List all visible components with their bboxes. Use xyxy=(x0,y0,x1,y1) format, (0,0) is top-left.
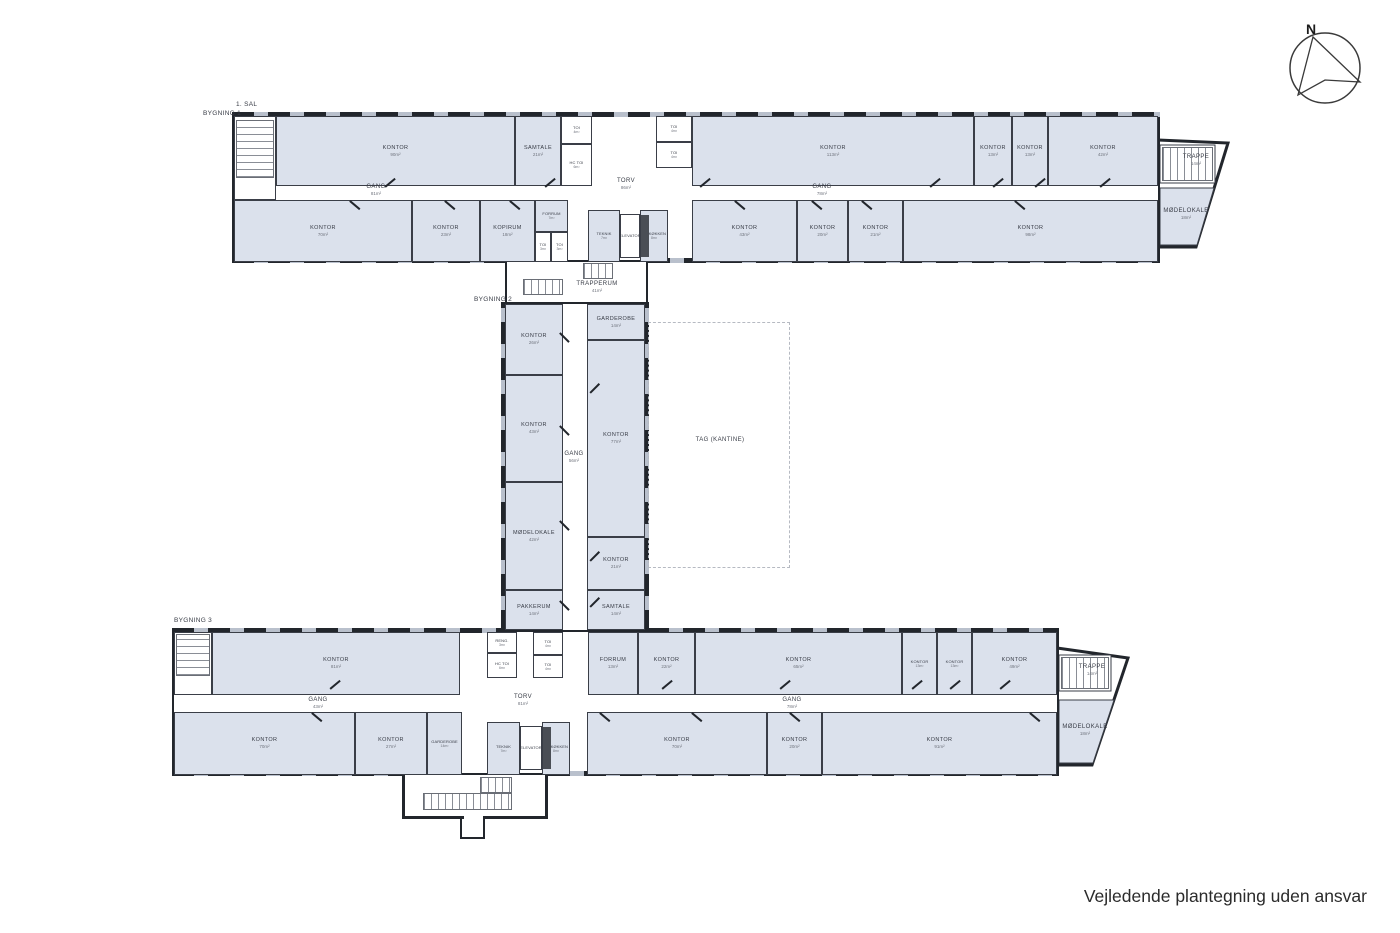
wall-segment xyxy=(402,816,464,819)
room-label: ELEVATOR xyxy=(520,745,541,750)
room-area: 14m² xyxy=(441,744,449,749)
room-label: KONTOR xyxy=(810,225,836,232)
b3-moedelokale-18-east: MØDELOKALE18m² xyxy=(1062,723,1107,737)
area-size: 78m² xyxy=(782,704,801,710)
room-b1-toi-3-a: TOI3m² xyxy=(535,232,551,262)
area-size: 43m² xyxy=(308,704,327,710)
room-area: 13m² xyxy=(916,664,924,669)
area-size: 14m² xyxy=(1183,161,1209,167)
room-b1-kontor-90: KONTOR90m² xyxy=(276,116,515,186)
room-label: KOPIRUM xyxy=(493,225,521,232)
wall-segment xyxy=(646,260,648,304)
area-label: GANG xyxy=(782,696,801,704)
kitchen-counter xyxy=(641,215,649,257)
room-area: 26m² xyxy=(529,340,539,346)
room-area: 4m² xyxy=(545,667,551,672)
room-label: KONTOR xyxy=(820,145,846,152)
room-b1-forrum-7: FORRUM7m² xyxy=(535,200,568,232)
room-area: 3m² xyxy=(499,643,505,648)
room-area: 77m² xyxy=(611,439,621,445)
room-b3-forrum-13: FORRUM13m² xyxy=(588,632,638,695)
room-b3-kontor-49: KONTOR49m² xyxy=(972,632,1057,695)
room-b2-garderobe-14: GARDEROBE14m² xyxy=(587,304,645,340)
room-area: 8m² xyxy=(553,749,559,754)
stairs xyxy=(176,634,210,676)
room-label: KONTOR xyxy=(1017,145,1043,152)
area-label: MØDELOKALE xyxy=(1163,207,1208,215)
room-area: 14m² xyxy=(529,611,539,617)
room-b2-kontor-26: KONTOR26m² xyxy=(505,304,563,375)
b1-gang-81: GANG81m² xyxy=(366,183,385,197)
room-b3-kontor-91: KONTOR91m² xyxy=(822,712,1057,775)
room-area: 49m² xyxy=(1009,664,1019,670)
area-label: GANG xyxy=(564,450,583,458)
area-size: 18m² xyxy=(1163,215,1208,221)
room-b2-moedelokale-42: MØDELOKALE42m² xyxy=(505,482,563,590)
room-b3-elevator: ELEVATOR xyxy=(520,726,542,770)
room-label: MØDELOKALE xyxy=(513,530,555,537)
room-b1-samtale-21: SAMTALE21m² xyxy=(515,116,561,186)
room-b1-kontor-20: KONTOR20m² xyxy=(797,200,848,262)
room-area: 43m² xyxy=(739,232,749,238)
room-area: 18m² xyxy=(502,232,512,238)
room-area: 113m² xyxy=(827,152,839,158)
room-area: 14m² xyxy=(611,611,621,617)
room-label: KONTOR xyxy=(378,737,404,744)
room-area: 70m² xyxy=(672,744,682,750)
room-b2-samtale-14: SAMTALE14m² xyxy=(587,590,645,630)
room-area: 4m² xyxy=(671,129,677,134)
room-label: KONTOR xyxy=(664,737,690,744)
b2-gang-56: GANG56m² xyxy=(564,450,583,464)
room-area: 7m² xyxy=(548,216,554,221)
building-3-label: BYGNING 3 xyxy=(174,617,212,624)
room-label: KONTOR xyxy=(433,225,459,232)
stairs xyxy=(480,777,512,793)
room-b3-kontor-65: KONTOR65m² xyxy=(695,632,902,695)
b3-gang-43: GANG43m² xyxy=(308,696,327,710)
room-area: 90m² xyxy=(390,152,400,158)
room-b3-kontor-27: KONTOR27m² xyxy=(355,712,427,775)
room-area: 20m² xyxy=(817,232,827,238)
room-label: KONTOR xyxy=(252,737,278,744)
b1-torv-86: TORV86m² xyxy=(617,177,635,191)
room-label: KONTOR xyxy=(980,145,1006,152)
disclaimer-text: Vejledende plantegning uden ansvar xyxy=(1084,886,1367,907)
room-area: 21m² xyxy=(611,564,621,570)
room-b1-kontor-70: KONTOR70m² xyxy=(234,200,412,262)
room-area: 3m² xyxy=(540,247,546,252)
room-b1-kontor-23: KONTOR23m² xyxy=(412,200,480,262)
stairs xyxy=(236,120,274,178)
wall-segment xyxy=(460,816,462,839)
room-b3-kontor-70-west: KONTOR70m² xyxy=(174,712,355,775)
room-area: 4m² xyxy=(573,130,579,135)
room-b1-toi-4-ne1: TOI4m² xyxy=(656,116,692,142)
room-area: 42m² xyxy=(1098,152,1108,158)
room-b1-kontor-113: KONTOR113m² xyxy=(692,116,974,186)
b3-torv-81: TORV81m² xyxy=(514,693,532,707)
room-area: 70m² xyxy=(318,232,328,238)
room-label: FORRUM xyxy=(600,657,627,664)
area-size: 14m² xyxy=(1079,671,1105,677)
room-b3-kontor-81: KONTOR81m² xyxy=(212,632,460,695)
room-label: KONTOR xyxy=(1018,225,1044,232)
room-label: KONTOR xyxy=(383,145,409,152)
room-area: 14m² xyxy=(611,323,621,329)
room-b1-teknik-7: TEKNIK7m² xyxy=(588,210,620,262)
room-label: KONTOR xyxy=(1002,657,1028,664)
room-b1-kontor-21: KONTOR21m² xyxy=(848,200,903,262)
floor-label: 1. SAL xyxy=(236,101,257,108)
room-b2-kontor-21: KONTOR21m² xyxy=(587,537,645,590)
room-area: 4m² xyxy=(545,644,551,649)
b3-trappe-14-east: TRAPPE14m² xyxy=(1079,663,1105,677)
area-size: 86m² xyxy=(617,185,635,191)
room-label: KONTOR xyxy=(863,225,889,232)
area-label: MØDELOKALE xyxy=(1062,723,1107,731)
b1-trappe-14-east: TRAPPE14m² xyxy=(1183,153,1209,167)
room-b3-reng-3: RENG.3m² xyxy=(487,632,517,653)
area-size: 81m² xyxy=(366,191,385,197)
area-label: TRAPPERUM xyxy=(576,280,617,288)
room-b3-kontor-13-a: KONTOR13m² xyxy=(902,632,937,695)
room-area: 7m² xyxy=(601,236,607,241)
room-label: KONTOR xyxy=(521,422,547,429)
room-area: 23m² xyxy=(441,232,451,238)
room-area: 27m² xyxy=(386,744,396,750)
room-label: KONTOR xyxy=(782,737,808,744)
room-area: 4m² xyxy=(671,155,677,160)
north-compass-icon xyxy=(1290,33,1360,103)
stairs xyxy=(583,263,613,279)
area-label: TRAPPE xyxy=(1079,663,1105,671)
area-size: 78m² xyxy=(812,191,831,197)
area-size: 56m² xyxy=(564,458,583,464)
room-label: ELEVATOR xyxy=(620,233,640,238)
room-label: SAMTALE xyxy=(524,145,552,152)
room-area: 6m² xyxy=(499,666,505,671)
room-area: 43m² xyxy=(529,429,539,435)
room-area: 13m² xyxy=(1025,152,1035,158)
room-b3-toi-4-b: TOI4m² xyxy=(533,655,563,678)
room-area: 7m² xyxy=(500,749,506,754)
room-label: SAMTALE xyxy=(602,604,630,611)
room-area: 21m² xyxy=(870,232,880,238)
room-b3-teknik-7: TEKNIK7m² xyxy=(487,722,520,775)
stairs xyxy=(423,793,512,810)
room-area: 22m² xyxy=(661,664,671,670)
room-label: KONTOR xyxy=(1090,145,1116,152)
room-b1-elevator: ELEVATOR xyxy=(620,214,640,258)
room-b1-kontor-42: KONTOR42m² xyxy=(1048,116,1158,186)
room-b3-garderobe-14: GARDEROBE14m² xyxy=(427,712,462,775)
room-label: GARDEROBE xyxy=(597,316,636,323)
wall-segment xyxy=(545,775,548,819)
room-area: 70m² xyxy=(259,744,269,750)
room-b1-hc-toi-6: HC TOI6m² xyxy=(561,144,592,186)
kitchen-counter xyxy=(543,727,551,769)
room-label: KONTOR xyxy=(732,225,758,232)
building-2-label: BYGNING 2 xyxy=(474,296,512,303)
room-label: PAKKERUM xyxy=(517,604,551,611)
room-area: 8m² xyxy=(651,236,657,241)
floorplan-canvas: N Vejledende plantegning uden ansvar KON… xyxy=(0,0,1400,933)
b1-gang-78: GANG78m² xyxy=(812,183,831,197)
area-label: GANG xyxy=(308,696,327,704)
room-label: KONTOR xyxy=(323,657,349,664)
room-label: KONTOR xyxy=(654,657,680,664)
area-label: TRAPPE xyxy=(1183,153,1209,161)
b3-gang-78: GANG78m² xyxy=(782,696,801,710)
room-b2-kontor-77: KONTOR77m² xyxy=(587,340,645,537)
room-b1-toi-3-b: TOI3m² xyxy=(551,232,568,262)
room-b3-kontor-20: KONTOR20m² xyxy=(767,712,822,775)
area-label: GANG xyxy=(812,183,831,191)
tag-kantine: TAG (KANTINE) xyxy=(696,436,745,444)
room-area: 20m² xyxy=(789,744,799,750)
room-area: 91m² xyxy=(934,744,944,750)
area-label: TORV xyxy=(617,177,635,185)
room-area: 81m² xyxy=(331,664,341,670)
area-size: 41m² xyxy=(576,288,617,294)
area-label: TAG (KANTINE) xyxy=(696,436,745,444)
room-b1-kontor-13-b: KONTOR13m² xyxy=(1012,116,1048,186)
room-b1-kontor-98: KONTOR98m² xyxy=(903,200,1158,262)
area-label: GANG xyxy=(366,183,385,191)
room-b1-kontor-13-a: KONTOR13m² xyxy=(974,116,1012,186)
room-label: KONTOR xyxy=(927,737,953,744)
room-b1-toi-4-nw: TOI4m² xyxy=(561,116,592,144)
room-label: KONTOR xyxy=(603,432,629,439)
room-b3-hc-toi-6: HC TOI6m² xyxy=(487,653,517,678)
tag-kantine-area xyxy=(648,322,790,568)
room-area: 6m² xyxy=(573,165,579,170)
room-b1-toi-4-ne2: TOI4m² xyxy=(656,142,692,168)
b1-moedelokale-18-east: MØDELOKALE18m² xyxy=(1163,207,1208,221)
room-label: KONTOR xyxy=(521,333,547,340)
room-b3-toi-4-a: TOI4m² xyxy=(533,632,563,655)
wall-segment xyxy=(460,837,485,839)
room-b1-kopirum-18: KOPIRUM18m² xyxy=(480,200,535,262)
room-area: 42m² xyxy=(529,537,539,543)
area-label: TORV xyxy=(514,693,532,701)
stairs xyxy=(523,279,563,295)
room-area: 98m² xyxy=(1025,232,1035,238)
room-b2-kontor-43: KONTOR43m² xyxy=(505,375,563,482)
wall-segment xyxy=(483,816,485,839)
area-size: 18m² xyxy=(1062,731,1107,737)
trapperum-41: TRAPPERUM41m² xyxy=(576,280,617,294)
area-size: 81m² xyxy=(514,701,532,707)
building-1-label: BYGNING 1 xyxy=(203,110,241,117)
wall-segment xyxy=(402,775,405,819)
room-area: 13m² xyxy=(951,664,959,669)
room-area: 21m² xyxy=(533,152,543,158)
room-b2-pakkerum-14: PAKKERUM14m² xyxy=(505,590,563,630)
room-area: 13m² xyxy=(988,152,998,158)
room-label: KONTOR xyxy=(786,657,812,664)
north-label: N xyxy=(1306,21,1316,37)
room-label: KONTOR xyxy=(603,557,629,564)
room-label: KONTOR xyxy=(310,225,336,232)
wall-segment xyxy=(483,816,548,819)
room-b3-kontor-70-east: KONTOR70m² xyxy=(587,712,767,775)
room-area: 65m² xyxy=(793,664,803,670)
room-area: 13m² xyxy=(608,664,618,670)
room-area: 3m² xyxy=(556,247,562,252)
